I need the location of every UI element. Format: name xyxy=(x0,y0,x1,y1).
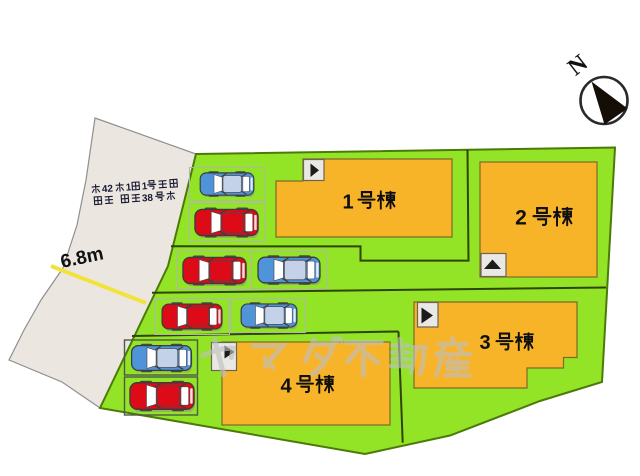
svg-text:42: 42 xyxy=(102,184,114,196)
svg-text:1: 1 xyxy=(342,192,353,214)
svg-text:3: 3 xyxy=(479,332,490,354)
svg-text:2: 2 xyxy=(515,207,527,230)
svg-text:4: 4 xyxy=(280,376,292,398)
svg-text:38: 38 xyxy=(142,193,154,205)
